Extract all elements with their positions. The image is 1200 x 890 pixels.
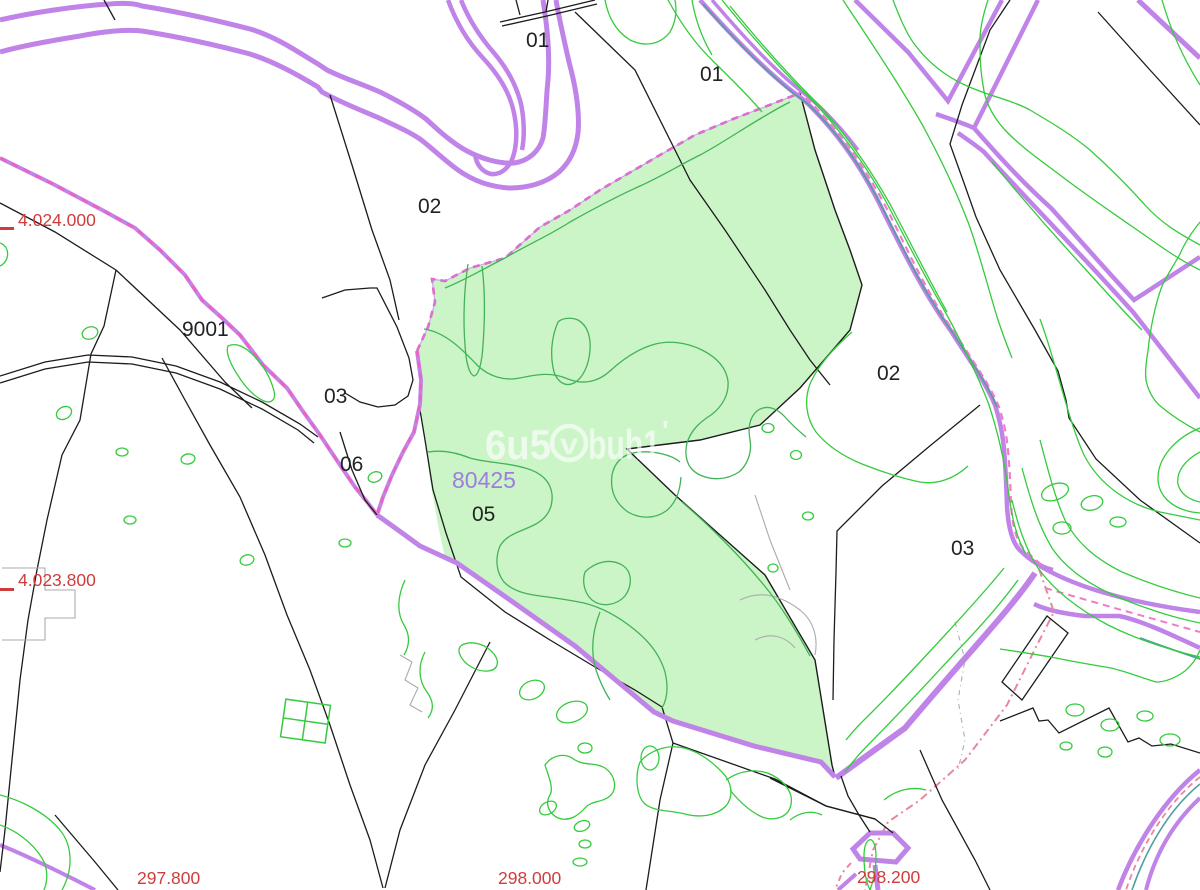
svg-text:9001: 9001 <box>182 318 229 341</box>
svg-text:6u5: 6u5 <box>485 421 551 468</box>
svg-text:298.200: 298.200 <box>857 867 921 887</box>
svg-text:06: 06 <box>340 453 363 476</box>
svg-text:v: v <box>560 428 578 461</box>
svg-text:4.024.000: 4.024.000 <box>18 210 96 230</box>
svg-text:05: 05 <box>472 503 495 526</box>
svg-text:02: 02 <box>877 362 900 385</box>
svg-text:': ' <box>662 415 669 446</box>
svg-text:4.023.800: 4.023.800 <box>18 570 96 590</box>
svg-text:01: 01 <box>700 63 723 86</box>
svg-text:03: 03 <box>324 385 347 408</box>
svg-text:298.000: 298.000 <box>498 868 562 888</box>
svg-text:01: 01 <box>526 29 549 52</box>
svg-text:03: 03 <box>951 537 974 560</box>
svg-text:buh1: buh1 <box>588 421 660 468</box>
svg-text:297.800: 297.800 <box>137 868 201 888</box>
svg-text:02: 02 <box>418 195 441 218</box>
svg-text:80425: 80425 <box>452 467 516 493</box>
